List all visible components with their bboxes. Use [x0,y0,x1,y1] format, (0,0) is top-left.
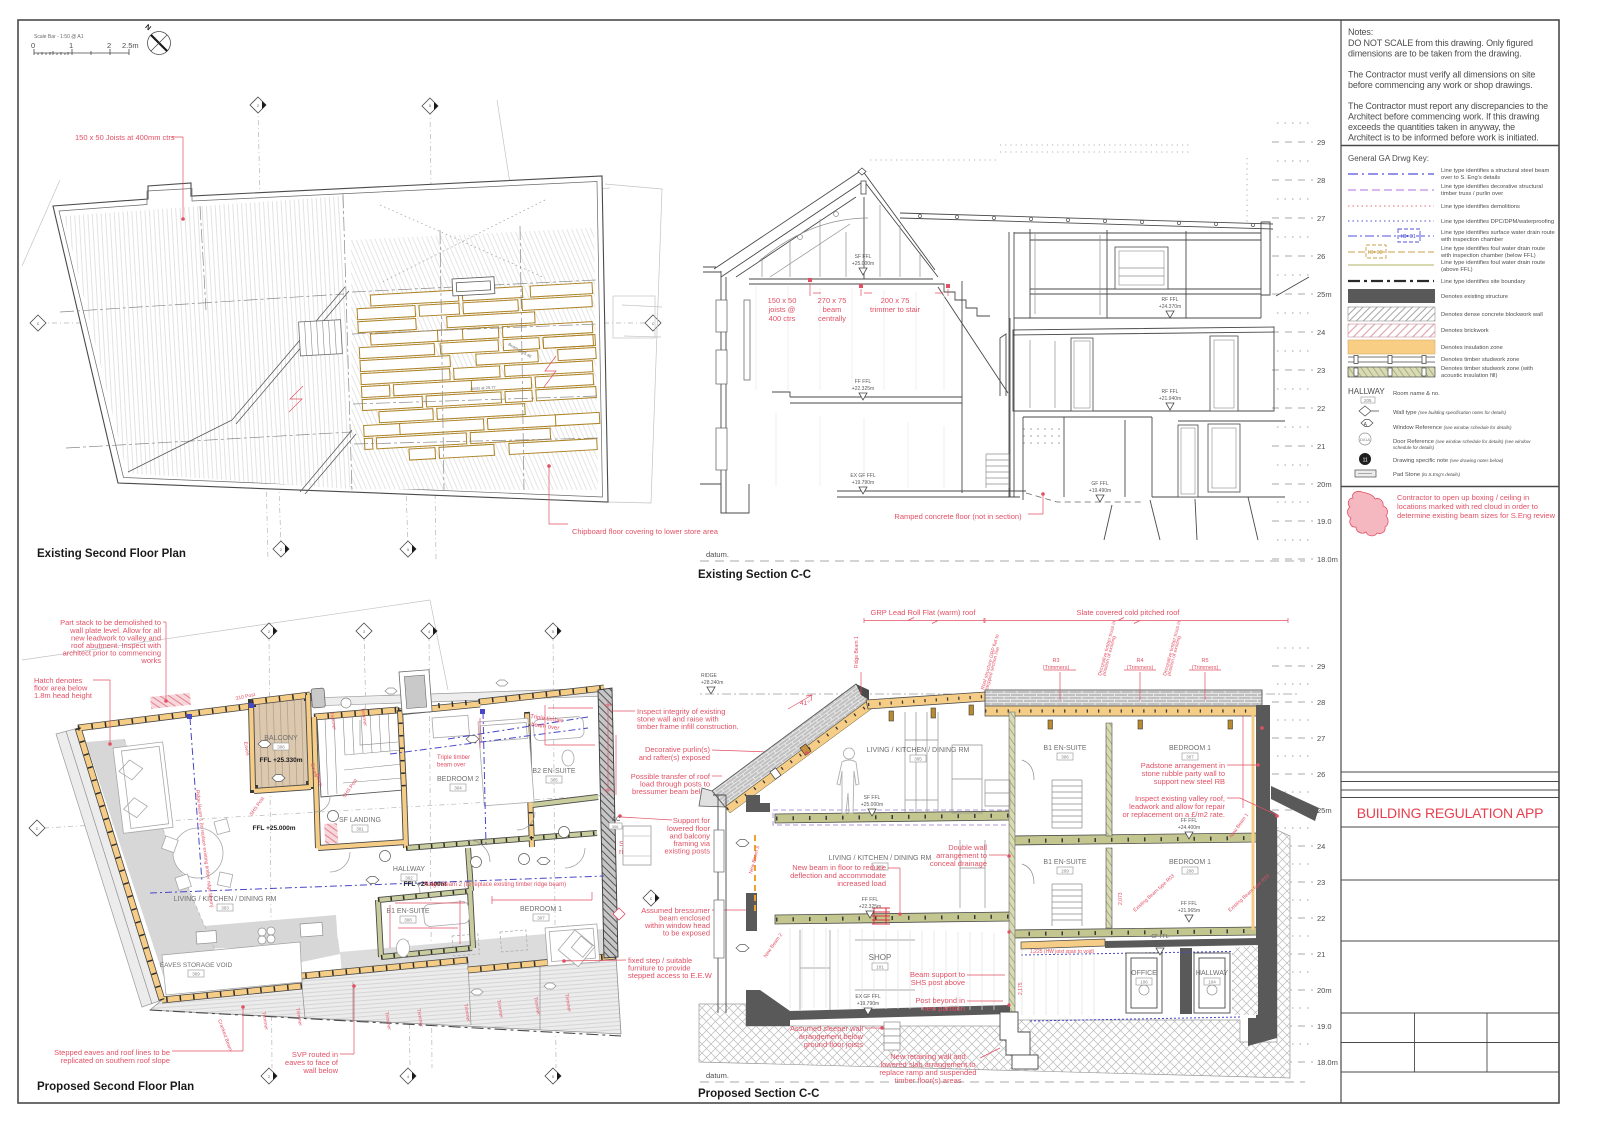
svg-text:+22.325m: +22.325m [859,904,881,910]
svg-text:2: 2 [107,41,111,50]
svg-text:2: 2 [280,548,282,552]
svg-text:306: 306 [1061,755,1069,760]
svg-text:306: 306 [277,745,285,750]
svg-text:R4: R4 [1136,658,1143,664]
svg-text:Line type identifies demolitio: Line type identifies demolitions [1441,204,1520,210]
svg-text:C: C [37,322,40,326]
svg-text:304: 304 [454,786,462,791]
svg-text:IC=01: IC=01 [1401,234,1416,240]
svg-text:Denotes dense concrete blockwo: Denotes dense concrete blockwork wall [1441,312,1543,318]
svg-text:+19.000m: +19.000m [1149,941,1171,947]
svg-text:timber truss / purlin over: timber truss / purlin over [1441,191,1503,197]
svg-text:Slate covered cold pitched roo: Slate covered cold pitched roof [1077,608,1181,617]
svg-text:(Trimmers): (Trimmers) [1127,665,1154,671]
svg-text:Existing Second Floor Plan: Existing Second Floor Plan [37,548,186,560]
svg-text:+24.370m: +24.370m [1159,304,1181,310]
svg-text:Ridge Beam 1: Ridge Beam 1 [854,636,860,668]
svg-text:106: 106 [1140,980,1148,985]
svg-text:SHOP: SHOP [869,953,892,962]
svg-text:Architect before commencing wo: Architect before commencing work. If thi… [1348,112,1539,122]
svg-text:LIVING / KITCHEN / DINING RM: LIVING / KITCHEN / DINING RM [867,747,970,754]
svg-text:SF FFL: SF FFL [864,795,881,801]
svg-text:DO NOT SCALE from this drawing: DO NOT SCALE from this drawing. Only fig… [1348,38,1533,48]
svg-text:HALLWAY: HALLWAY [1196,970,1228,977]
svg-text:150 x 50: 150 x 50 [768,296,797,305]
svg-text:existing posts: existing posts [665,847,711,856]
svg-text:5: 5 [407,548,409,552]
svg-text:18.0m: 18.0m [1317,1058,1338,1067]
svg-text:General GA Drwg Key:: General GA Drwg Key: [1348,154,1429,163]
svg-text:LIVING / KITCHEN / DINING RM: LIVING / KITCHEN / DINING RM [174,896,277,903]
svg-text:Eaves: Eaves [242,741,250,756]
svg-text:datum.: datum. [706,1071,729,1080]
svg-text:2,175: 2,175 [1018,982,1024,995]
svg-text:Chipboard floor covering to lo: Chipboard floor covering to lower store … [572,527,719,536]
svg-text:with inspection chamber (below: with inspection chamber (below FFL) [1440,253,1536,259]
svg-text:29: 29 [1317,138,1325,147]
svg-text:5: 5 [429,104,431,108]
svg-text:New Beam 5: New Beam 5 [748,845,761,874]
svg-text:1.8m head height: 1.8m head height [34,691,93,700]
svg-text:works: works [140,656,161,665]
svg-text:270 x 75: 270 x 75 [818,296,847,305]
svg-text:Line type identifies site boun: Line type identifies site boundary [1441,279,1526,285]
svg-text:27: 27 [1317,734,1325,743]
svg-text:305: 305 [914,757,922,762]
svg-text:before commencing any work or: before commencing any work or shop drawi… [1348,80,1533,90]
svg-text:41°: 41° [800,699,810,707]
svg-text:BEDROOM 1: BEDROOM 1 [520,906,562,913]
svg-text:BEDROOM 1: BEDROOM 1 [1169,745,1211,752]
svg-text:or replacement on a £/m2 rate.: or replacement on a £/m2 rate. [1122,810,1225,819]
svg-text:+19.490m: +19.490m [1089,488,1111,494]
svg-text:Denotes existing structure: Denotes existing structure [1441,294,1508,300]
svg-text:307: 307 [537,916,545,921]
svg-text:FF FFL: FF FFL [855,379,872,385]
svg-text:Denotes timber studwork zone (: Denotes timber studwork zone (with [1441,366,1533,372]
svg-text:1,225 (HW joist span to void): 1,225 (HW joist span to void) [1030,949,1095,955]
svg-text:schedule for details): schedule for details) [1393,445,1435,450]
svg-text:+19.790m: +19.790m [852,480,874,486]
svg-text:5: 5 [552,630,554,634]
svg-text:Scale Bar - 1:50 @ A1: Scale Bar - 1:50 @ A1 [34,34,84,40]
svg-text:HALLWAY: HALLWAY [1348,387,1385,396]
svg-text:2: 2 [268,630,270,634]
svg-text:2: 2 [257,104,259,108]
svg-text:0: 0 [31,41,35,50]
svg-text:29: 29 [1317,662,1325,671]
svg-text:timber floor(s) areas: timber floor(s) areas [894,1076,961,1085]
svg-text:Line type identifies DPC/DPM/w: Line type identifies DPC/DPM/waterproofi… [1441,219,1554,225]
svg-text:D01A: D01A [1360,437,1370,442]
svg-text:RF FFL: RF FFL [1162,297,1179,303]
svg-text:Drawing specific note (see dra: Drawing specific note (see drawing notes… [1393,458,1504,464]
svg-text:FFL +25.330m: FFL +25.330m [259,757,302,764]
svg-text:19.0: 19.0 [1317,1022,1332,1031]
svg-text:SHS post above: SHS post above [911,978,965,987]
svg-text:Proposed Section C-C: Proposed Section C-C [698,1088,819,1100]
svg-text:BUILDING REGULATION APP: BUILDING REGULATION APP [1357,805,1544,821]
svg-text:Proposed Second Floor Plan: Proposed Second Floor Plan [37,1081,194,1093]
svg-text:C: C [650,897,653,901]
svg-text:ground floor joists: ground floor joists [804,1040,863,1049]
svg-text:24: 24 [1317,842,1325,851]
svg-text:101: 101 [876,965,884,970]
svg-text:Triple timber: Triple timber [437,755,470,761]
svg-text:Existing Section C-C: Existing Section C-C [698,569,811,581]
svg-text:Ramped concrete floor (not in: Ramped concrete floor (not in section) [894,512,1022,521]
svg-text:B1 EN-SUITE: B1 EN-SUITE [1043,859,1087,866]
svg-text:28: 28 [1317,176,1325,185]
svg-text:104: 104 [1208,980,1216,985]
svg-text:21: 21 [1317,442,1325,451]
svg-text:EX GF FFL: EX GF FFL [855,994,881,1000]
svg-text:+24.400m: +24.400m [1178,825,1200,831]
svg-text:305: 305 [550,778,558,783]
svg-text:stepped access to E.E.W: stepped access to E.E.W [628,971,713,980]
svg-text:303: 303 [221,906,229,911]
svg-text:conceal drainage: conceal drainage [930,859,987,868]
svg-text:205: 205 [1364,398,1372,403]
svg-text:Window Reference (see window s: Window Reference (see window schedule fo… [1393,425,1512,431]
svg-text:150 x 50 Joists at 400mm ctrs: 150 x 50 Joists at 400mm ctrs [75,133,175,142]
svg-text:beam: beam [823,305,842,314]
svg-text:Line type identifies foul wate: Line type identifies foul water drain ro… [1441,260,1545,266]
svg-text:+25.000m: +25.000m [861,802,883,808]
svg-text:exceeds the quantities taken i: exceeds the quantities taken in anyway, … [1348,122,1515,132]
svg-text:26: 26 [1317,252,1325,261]
svg-text:SF FFL: SF FFL [855,254,872,260]
svg-text:The Contractor must report any: The Contractor must report any discrepan… [1348,101,1548,111]
svg-text:to be exposed: to be exposed [663,929,710,938]
svg-text:Notes:: Notes: [1348,27,1373,37]
svg-text:C: C [36,827,39,831]
svg-text:2: 2 [268,1075,270,1079]
svg-text:Existing Beam type R03: Existing Beam type R03 [1132,873,1176,913]
svg-text:+25.000m: +25.000m [852,261,874,267]
svg-text:Line type identifies decorativ: Line type identifies decorative structur… [1441,184,1543,190]
svg-text:4: 4 [407,1075,409,1079]
svg-text:BEDROOM 1: BEDROOM 1 [1169,859,1211,866]
svg-text:AC: AC [612,817,621,823]
svg-text:LIVING / KITCHEN / DINING RM: LIVING / KITCHEN / DINING RM [829,855,932,862]
svg-text:+21.940m: +21.940m [1159,396,1181,402]
svg-text:BEDROOM 2: BEDROOM 2 [437,776,479,783]
svg-text:308: 308 [404,918,412,923]
svg-text:209: 209 [1061,869,1069,874]
svg-text:B1 EN-SUITE: B1 EN-SUITE [1043,745,1087,752]
svg-text:Cranked Beam: Cranked Beam [216,1019,233,1052]
svg-text:200 x 75: 200 x 75 [881,296,910,305]
svg-text:trimmer to stair: trimmer to stair [870,305,921,314]
svg-text:306: 306 [612,824,619,829]
svg-text:+28.240m: +28.240m [701,680,723,686]
svg-text:RIDGE: RIDGE [701,673,718,679]
svg-text:+21.965m: +21.965m [1178,908,1200,914]
svg-text:FF FFL: FF FFL [1181,901,1198,907]
svg-text:over to S. Eng's details: over to S. Eng's details [1441,175,1500,181]
svg-text:4: 4 [428,630,430,634]
svg-text:Room name & no.: Room name & no. [1393,391,1440,397]
svg-text:18.0m: 18.0m [1317,555,1338,564]
svg-text:(Trimmers): (Trimmers) [1043,665,1070,671]
svg-text:B2 EN-SUITE: B2 EN-SUITE [532,768,576,775]
svg-text:21: 21 [1317,950,1325,959]
svg-text:25m: 25m [1317,290,1332,299]
svg-text:1: 1 [69,41,73,50]
svg-text:replicated on southern roof sl: replicated on southern roof slope [61,1056,170,1065]
svg-text:+22.325m: +22.325m [852,386,874,392]
svg-text:2,073: 2,073 [1118,892,1124,905]
svg-text:R3: R3 [1052,658,1059,664]
svg-text:increased load: increased load [837,879,886,888]
svg-text:23: 23 [1317,878,1325,887]
svg-text:11: 11 [1363,458,1368,464]
svg-text:EX GF FFL: EX GF FFL [850,473,876,479]
svg-text:C: C [652,322,655,326]
svg-text:FFL +25.000m: FFL +25.000m [252,825,295,832]
svg-text:The Contractor must verify all: The Contractor must verify all dimension… [1348,70,1535,80]
svg-text:determine existing beam sizes: determine existing beam sizes for S.Eng … [1397,511,1556,520]
svg-text:Wall type (see building specif: Wall type (see building specification no… [1393,410,1507,416]
svg-text:New Beam 2: New Beam 2 [763,932,784,959]
svg-text:SF LANDING: SF LANDING [339,817,381,824]
svg-text:24: 24 [1317,328,1325,337]
svg-text:A: A [1364,422,1368,428]
svg-text:GF FFL: GF FFL [1151,934,1168,940]
svg-text:and rafter(s) exposed: and rafter(s) exposed [639,753,710,762]
svg-text:GF FFL: GF FFL [1091,481,1108,487]
svg-text:20m: 20m [1317,986,1332,995]
svg-text:BALCONY: BALCONY [264,735,298,742]
svg-text:Denotes insulation zone: Denotes insulation zone [1441,345,1503,351]
svg-text:Denotes timber studwork zone: Denotes timber studwork zone [1441,357,1519,363]
svg-text:301: 301 [356,827,364,832]
svg-text:RF FFL: RF FFL [1162,389,1179,395]
svg-text:beam over: beam over [437,763,465,769]
svg-text:23: 23 [1317,366,1325,375]
svg-text:support new steel RB: support new steel RB [1154,777,1225,786]
svg-text:Line type identifies surface w: Line type identifies surface water drain… [1441,230,1555,236]
svg-text:26: 26 [1317,770,1325,779]
svg-text:(above FFL): (above FFL) [1441,267,1473,273]
svg-text:25m: 25m [1317,806,1332,815]
svg-text:302: 302 [405,876,413,881]
svg-text:Line type identifies foul wate: Line type identifies foul water drain ro… [1441,246,1545,252]
svg-text:IC=02: IC=02 [1368,250,1383,256]
svg-text:3: 3 [363,630,365,634]
svg-text:dimensions are to be taken fro: dimensions are to be taken from the draw… [1348,49,1522,59]
svg-text:+19.790m: +19.790m [857,1001,879,1007]
svg-text:datum.: datum. [706,550,729,559]
svg-text:bressumer beam below: bressumer beam below [632,787,711,796]
svg-text:timber frame infill constructi: timber frame infill construction. [637,722,739,731]
svg-text:400 ctrs: 400 ctrs [769,314,796,323]
svg-text:Denotes brickwork: Denotes brickwork [1441,328,1489,334]
svg-text:22: 22 [1317,404,1325,413]
svg-text:OFFICE: OFFICE [1131,970,1157,977]
svg-text:joists @: joists @ [768,305,796,314]
svg-text:307: 307 [1186,755,1194,760]
svg-text:GRP Lead Roll Flat (warm) roof: GRP Lead Roll Flat (warm) roof [871,608,977,617]
svg-text:R5: R5 [1201,658,1208,664]
svg-text:19.0: 19.0 [1317,517,1332,526]
svg-text:Contractor to open up boxing /: Contractor to open up boxing / ceiling i… [1397,493,1529,502]
svg-text:wall below: wall below [302,1066,338,1075]
svg-text:FF FFL: FF FFL [862,897,879,903]
svg-text:Ridge Beam 2 (to replace exis: Ridge Beam 2 (to replace existing timber… [424,882,566,888]
svg-text:centrally: centrally [818,314,846,323]
svg-text:N: N [143,24,151,33]
svg-text:28: 28 [1317,698,1325,707]
svg-text:locations marked with red clou: locations marked with red cloud in order… [1397,502,1538,511]
svg-text:27: 27 [1317,214,1325,223]
svg-text:Line type identifies a structu: Line type identifies a structural steel … [1441,168,1549,174]
svg-text:5: 5 [552,1075,554,1079]
svg-text:EAVES STORAGE VOID: EAVES STORAGE VOID [160,962,233,969]
svg-text:(Trimmers): (Trimmers) [1192,665,1219,671]
svg-text:new partition: new partition [922,1004,965,1013]
svg-text:309: 309 [192,972,200,977]
svg-text:HALLWAY: HALLWAY [393,866,425,873]
svg-text:acoustic insulation fill): acoustic insulation fill) [1441,373,1497,379]
svg-text:208: 208 [1186,869,1194,874]
svg-text:20m: 20m [1317,480,1332,489]
svg-text:with inspection chamber: with inspection chamber [1440,237,1503,243]
svg-text:22: 22 [1317,914,1325,923]
svg-text:Pad Stone (to S.Eng's details): Pad Stone (to S.Eng's details) [1393,472,1461,478]
svg-text:SHS Post: SHS Post [249,795,267,817]
svg-text:2.5m: 2.5m [122,41,139,50]
svg-text:Architect is to be informed be: Architect is to be informed before work … [1348,133,1539,143]
svg-text:B1 EN-SUITE: B1 EN-SUITE [386,908,430,915]
